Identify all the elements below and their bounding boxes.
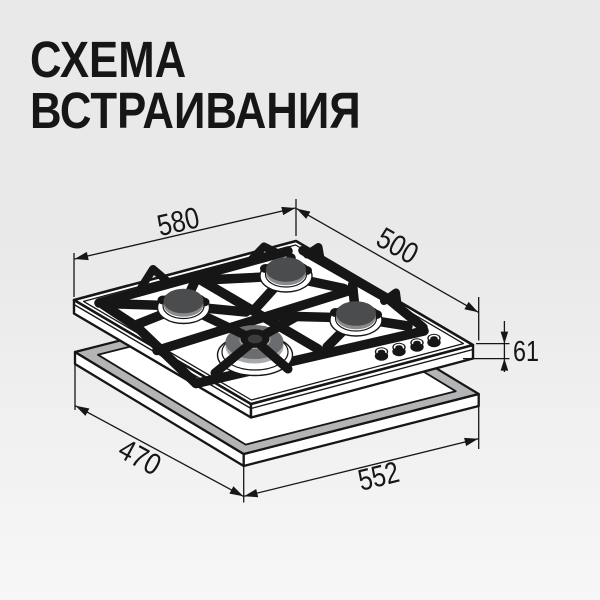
svg-text:61: 61 (513, 336, 539, 368)
svg-text:580: 580 (154, 201, 202, 243)
svg-text:500: 500 (371, 222, 424, 271)
svg-text:552: 552 (355, 456, 403, 498)
svg-text:470: 470 (113, 433, 167, 483)
